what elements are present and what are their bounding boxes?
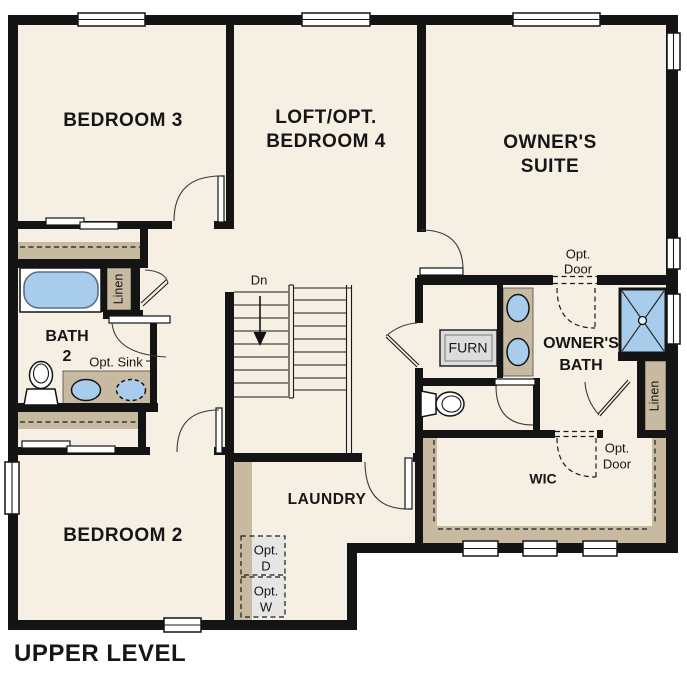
wic-shelf-left xyxy=(423,438,437,543)
owners-suite-label-line2: SUITE xyxy=(521,156,579,177)
window xyxy=(523,541,557,556)
opt-door-wic-label-line1: Opt. xyxy=(605,440,630,455)
linen-left-label: Linen xyxy=(111,274,125,305)
laundry-counter xyxy=(233,462,252,620)
opt-sink-label: Opt. Sink xyxy=(89,354,143,369)
opt-dryer-label-line1: Opt. xyxy=(254,542,279,557)
wic-label: WIC xyxy=(529,471,556,487)
window xyxy=(463,541,498,556)
bath2-label-line2: 2 xyxy=(63,348,72,365)
opt-washer-label-line1: Opt. xyxy=(254,583,279,598)
furnace-label: FURN xyxy=(449,340,488,356)
opt-door-wic-label-line2: Door xyxy=(603,456,632,471)
loft-label-line1: LOFT/OPT. xyxy=(275,107,377,128)
window xyxy=(667,33,680,70)
floor-plan-drawing: BEDROOM 3 LOFT/OPT. BEDROOM 4 OWNER'S SU… xyxy=(0,0,687,687)
opt-door-suite-label-line1: Opt. xyxy=(566,246,591,261)
sink-bath2-optional xyxy=(117,380,146,401)
window xyxy=(667,294,680,344)
bedroom3-label: BEDROOM 3 xyxy=(63,110,183,131)
bedroom2-label: BEDROOM 2 xyxy=(63,525,183,546)
window xyxy=(302,13,370,26)
owners-suite-label-line1: OWNER'S xyxy=(503,132,597,153)
window xyxy=(513,13,600,26)
loft-label-line2: BEDROOM 4 xyxy=(266,131,386,152)
bathtub xyxy=(20,268,101,312)
opt-washer-label-line2: W xyxy=(260,599,273,614)
toilet-owners-bath xyxy=(421,391,464,417)
opt-door-suite-label-line2: Door xyxy=(564,261,593,276)
shower xyxy=(620,289,666,353)
window xyxy=(667,238,680,269)
window xyxy=(583,541,617,556)
sink-owners-bath-1 xyxy=(507,295,529,322)
owners-bath-label-line1: OWNER'S xyxy=(543,335,619,352)
bedroom2-closet-shelf xyxy=(18,411,142,429)
bedroom3-closet-shelf xyxy=(18,242,142,260)
opt-dryer-label-line2: D xyxy=(261,558,270,573)
window xyxy=(5,462,19,514)
owners-bath-label-line2: BATH xyxy=(559,357,602,374)
floor-plan-page: BEDROOM 3 LOFT/OPT. BEDROOM 4 OWNER'S SU… xyxy=(0,0,687,687)
bath2-label-line1: BATH xyxy=(45,328,88,345)
stairs-down-label: Dn xyxy=(251,272,268,287)
window xyxy=(78,13,145,26)
laundry-label: LAUNDRY xyxy=(288,491,367,508)
window xyxy=(164,618,201,632)
plan-title: UPPER LEVEL xyxy=(14,640,186,667)
wic-shelf-right xyxy=(652,438,666,543)
linen-right-label: Linen xyxy=(647,381,661,412)
sink-owners-bath-2 xyxy=(507,339,529,366)
sink-bath2 xyxy=(72,380,101,401)
